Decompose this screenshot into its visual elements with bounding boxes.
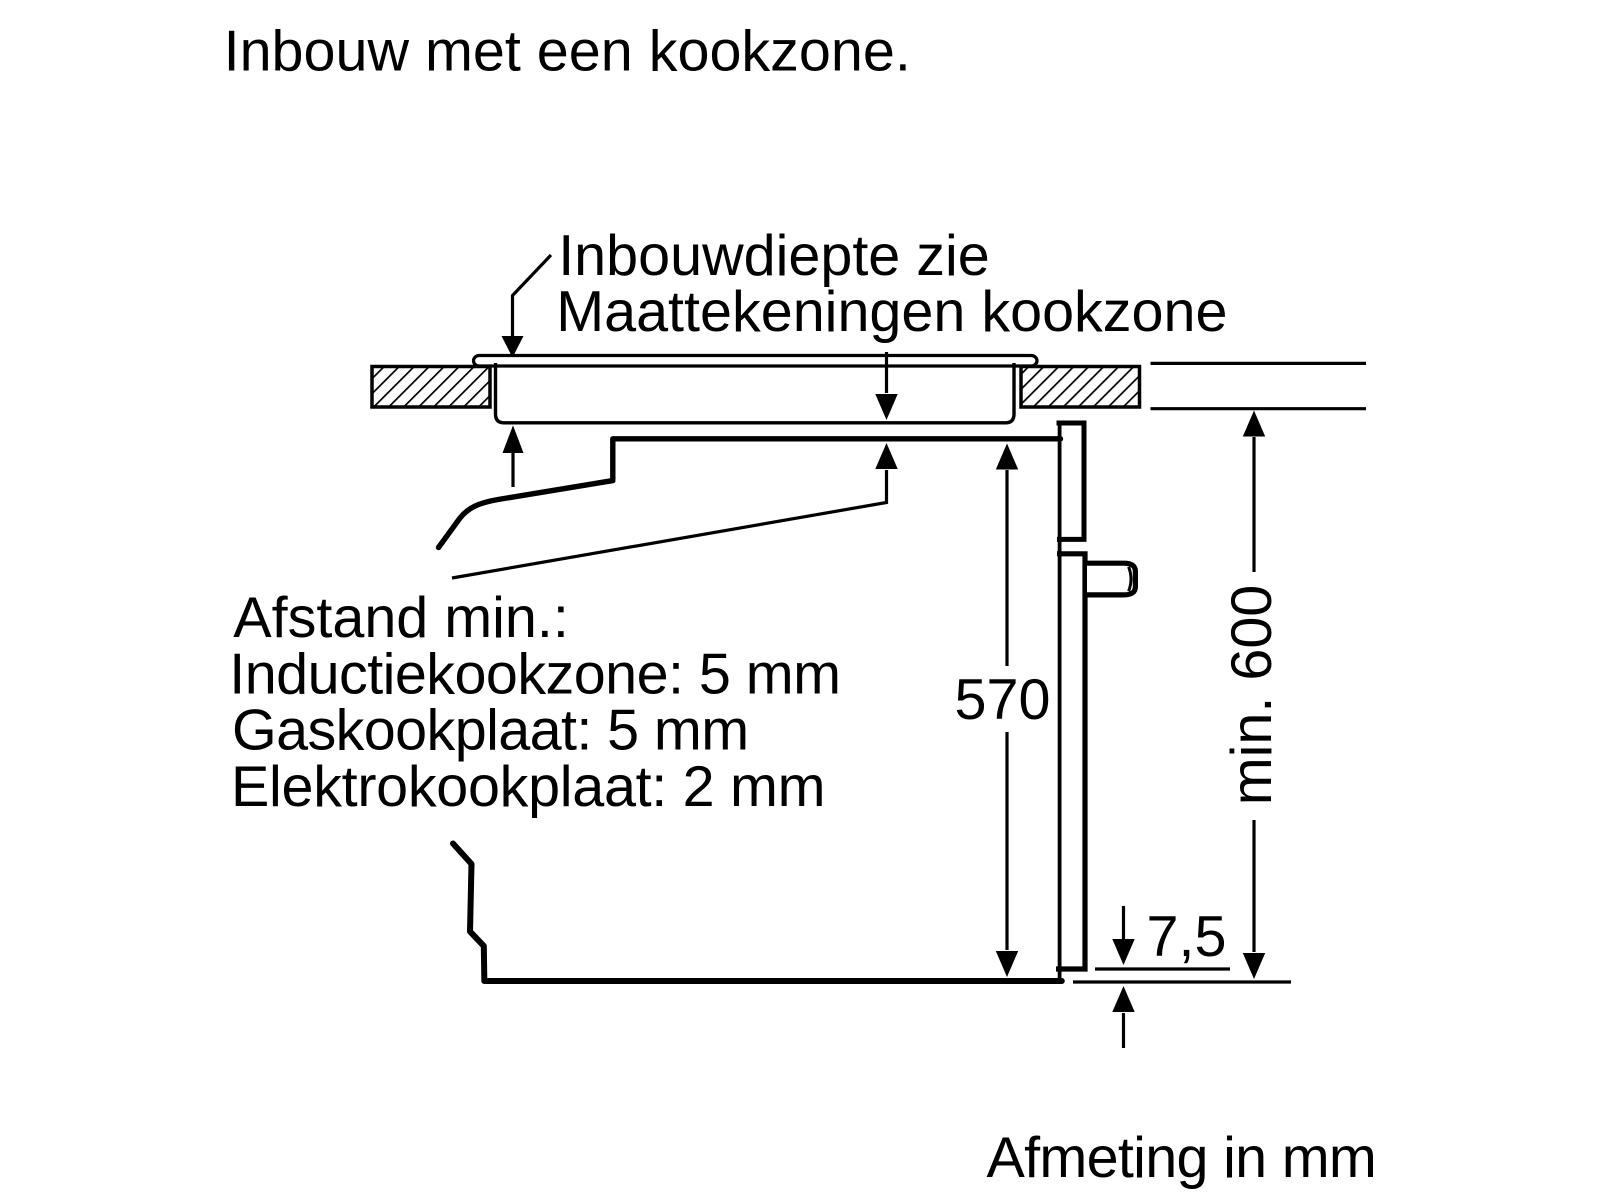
svg-text:7,5: 7,5 (1147, 905, 1227, 969)
svg-text:min. 600: min. 600 (1220, 585, 1284, 806)
svg-text:Inbouw met een kookzone.: Inbouw met een kookzone. (224, 20, 911, 84)
svg-text:570: 570 (955, 668, 1051, 732)
svg-text:Inductiekookzone: 5 mm: Inductiekookzone: 5 mm (229, 642, 840, 706)
svg-text:Elektrokookplaat: 2 mm: Elektrokookplaat: 2 mm (231, 755, 825, 819)
svg-text:Afmeting in mm: Afmeting in mm (987, 1126, 1377, 1190)
svg-text:Maattekeningen kookzone: Maattekeningen kookzone (556, 280, 1227, 344)
svg-text:Gaskookplaat: 5 mm: Gaskookplaat: 5 mm (232, 699, 749, 763)
svg-text:Afstand min.:: Afstand min.: (233, 586, 569, 650)
svg-text:Inbouwdiepte zie: Inbouwdiepte zie (558, 224, 990, 288)
